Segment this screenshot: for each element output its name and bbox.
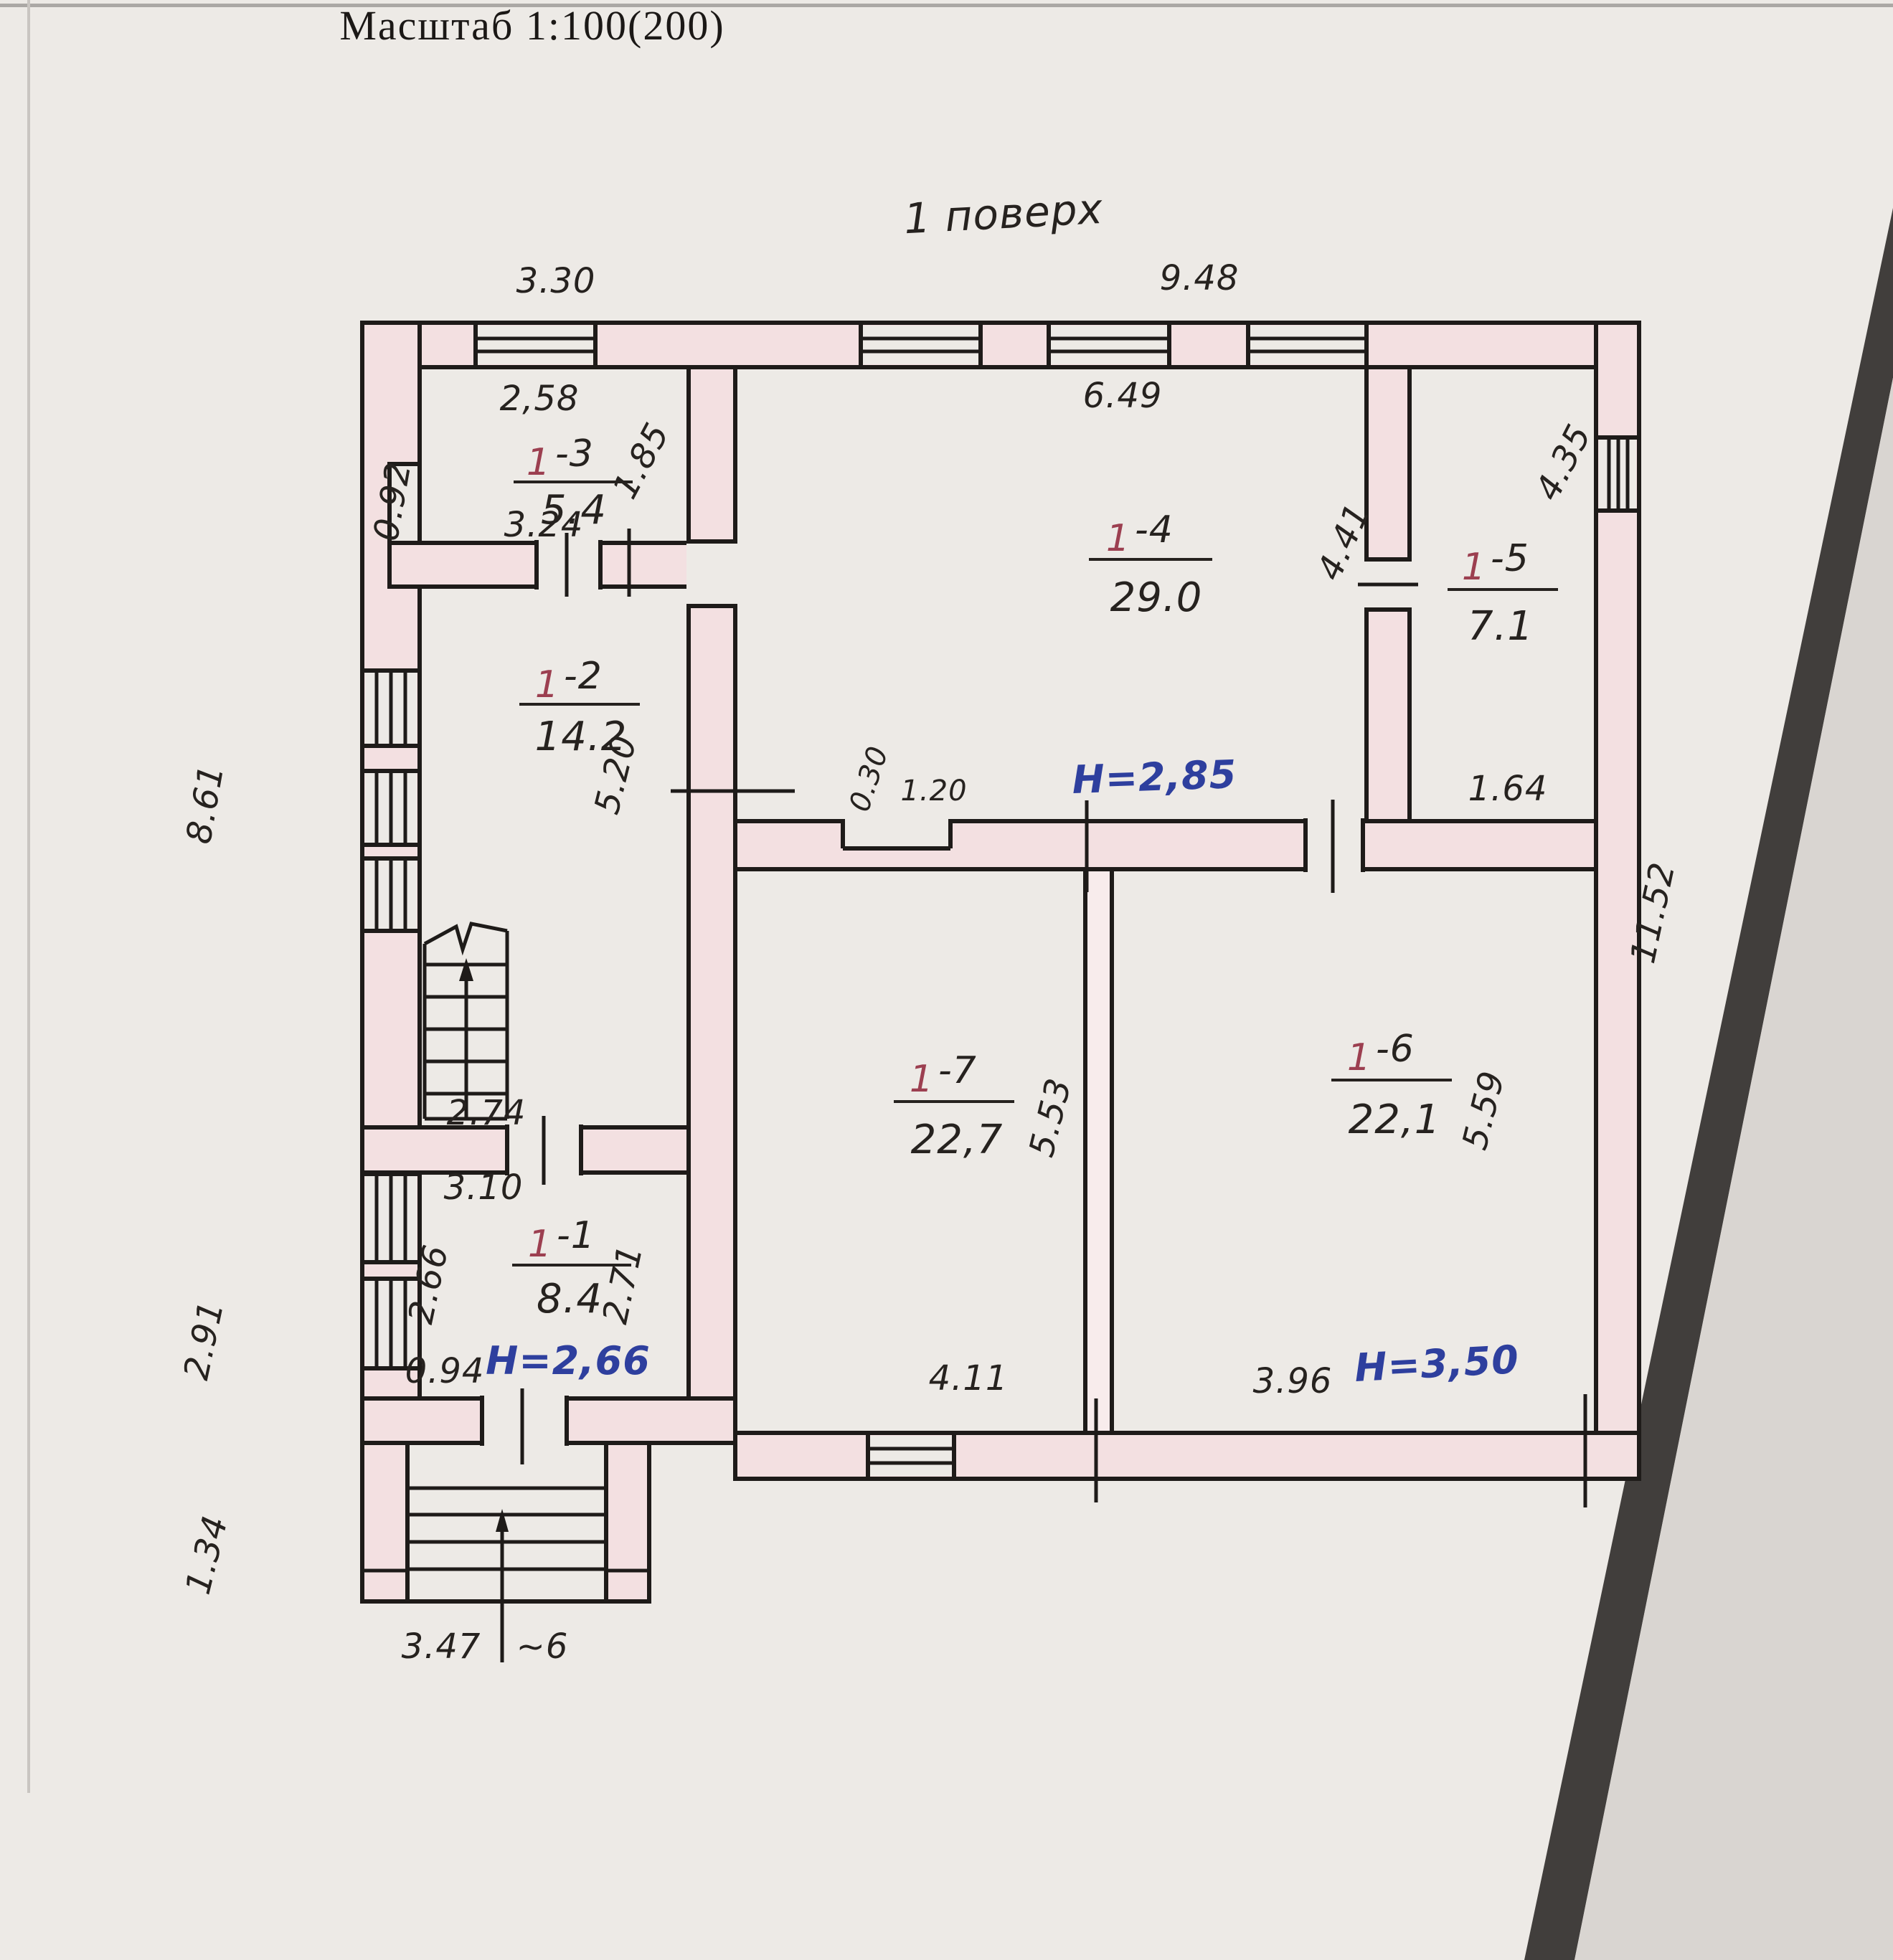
dim-room17-bottom: 4.11: [929, 1358, 1009, 1398]
room-number-prefix: 1: [535, 663, 560, 706]
dim-stairs-width: 2.74: [447, 1093, 527, 1133]
room-area: 22,7: [911, 1117, 1004, 1163]
room-number-suffix: -1: [557, 1214, 595, 1257]
window-bottom-room17: [868, 1433, 954, 1479]
room-area: 29.0: [1110, 574, 1203, 621]
door-opening-room11-porch: [482, 1396, 567, 1446]
dim-room14-top: 6.49: [1083, 376, 1163, 416]
scale-title: Масштаб 1:100(200): [339, 2, 724, 49]
wall-porch-right: [606, 1443, 649, 1601]
scanned-floor-plan-page: Масштаб 1:100(200) 1 поверх 3.30 9.48 2,…: [0, 0, 1893, 1960]
window-right-room15: [1596, 437, 1639, 511]
height-note-main: H=2,85: [1071, 752, 1237, 803]
floor-title: 1 поверх: [902, 184, 1104, 243]
room-number-prefix: 1: [527, 441, 551, 484]
floor-plan-drawing: Масштаб 1:100(200) 1 поверх 3.30 9.48 2,…: [0, 0, 1893, 1960]
room-area: 14.2: [535, 714, 628, 760]
room-area: 8.4: [537, 1276, 603, 1322]
window-top-room15: [1248, 323, 1366, 367]
niche-cut: [845, 818, 948, 846]
door-opening-hall-to-room14: [686, 541, 737, 606]
room-number-suffix: -3: [555, 432, 594, 475]
dim-top-left: 3.30: [516, 261, 596, 301]
dim-top-right: 9.48: [1160, 258, 1240, 298]
dim-room11-top: 3.10: [444, 1168, 524, 1208]
dim-room15-bottom: 1.64: [1468, 769, 1548, 809]
wall-wing-divider: [689, 367, 735, 1433]
window-left-room11-1: [362, 1174, 420, 1262]
height-note-left: H=2,66: [486, 1338, 651, 1383]
wall-porch-left: [362, 1443, 407, 1601]
window-top-room13: [476, 323, 595, 367]
room-number-suffix: -6: [1376, 1028, 1415, 1071]
room-number-prefix: 1: [1347, 1036, 1372, 1079]
dim-niche-width: 1.20: [900, 775, 967, 808]
dim-room11-bottom: 0.94: [405, 1351, 485, 1391]
room-number-prefix: 1: [1106, 517, 1130, 560]
room-number-suffix: -5: [1491, 537, 1529, 580]
window-left-room12-2: [362, 771, 420, 845]
height-note-right: H=3,50: [1354, 1337, 1521, 1391]
room-area: 7.1: [1468, 603, 1534, 650]
room-number-suffix: -2: [564, 655, 603, 698]
dim-room16-bottom: 3.96: [1253, 1361, 1333, 1401]
wall-room17-room16-divider: [1085, 869, 1112, 1433]
dim-porch-width: 3.47: [402, 1627, 481, 1667]
room-number-suffix: -4: [1135, 508, 1174, 551]
page-top-edge-line: [0, 4, 1893, 7]
room-area: 22,1: [1349, 1097, 1441, 1143]
room-number-prefix: 1: [1462, 546, 1486, 589]
window-left-room12-1: [362, 671, 420, 746]
room-number-prefix: 1: [528, 1223, 552, 1266]
room-area: 5.4: [541, 487, 607, 534]
page-left-crease: [27, 0, 30, 1793]
window-top-room14-right: [1049, 323, 1169, 367]
window-left-room12-3: [362, 858, 420, 931]
dim-porch-steps: ~6: [516, 1627, 569, 1667]
dim-room13-top: 2,58: [500, 379, 580, 419]
room-number-suffix: -7: [938, 1049, 977, 1092]
room-number-prefix: 1: [910, 1058, 934, 1101]
window-top-room14-left: [861, 323, 981, 367]
